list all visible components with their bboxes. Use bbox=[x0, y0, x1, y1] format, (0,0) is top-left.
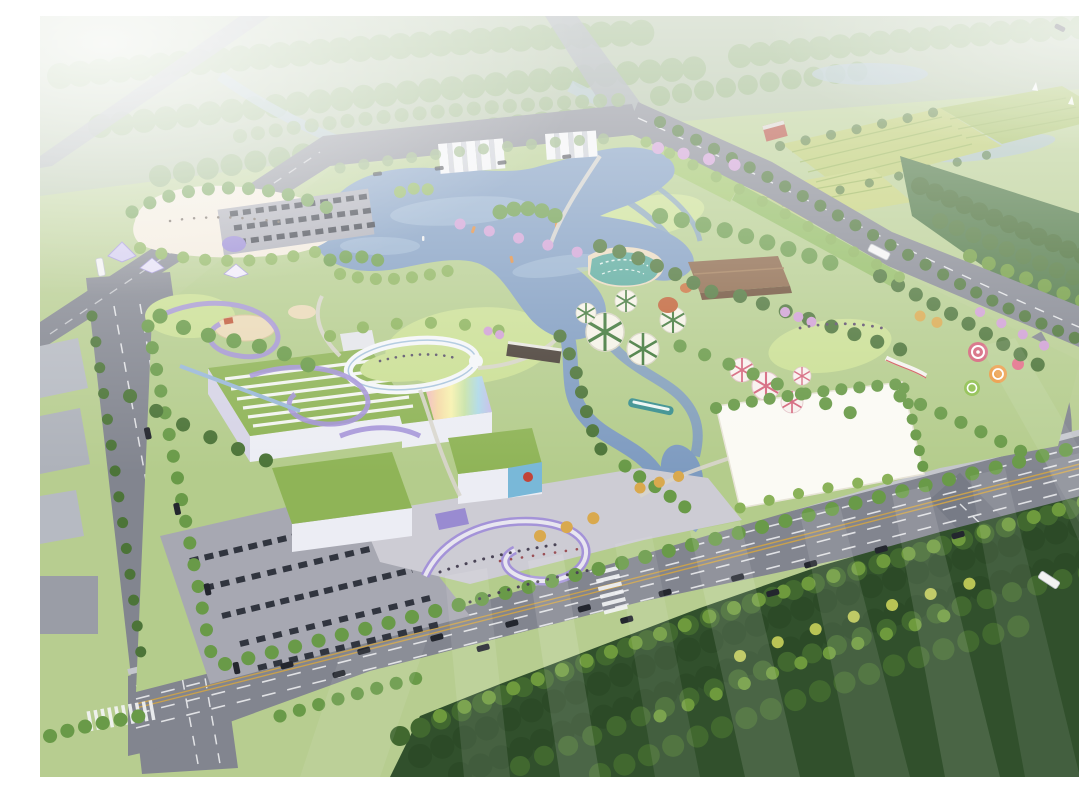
atmospheric-haze bbox=[40, 16, 1079, 777]
aerial-masterplan-rendering bbox=[40, 16, 1079, 777]
rendering-canvas bbox=[40, 16, 1079, 777]
